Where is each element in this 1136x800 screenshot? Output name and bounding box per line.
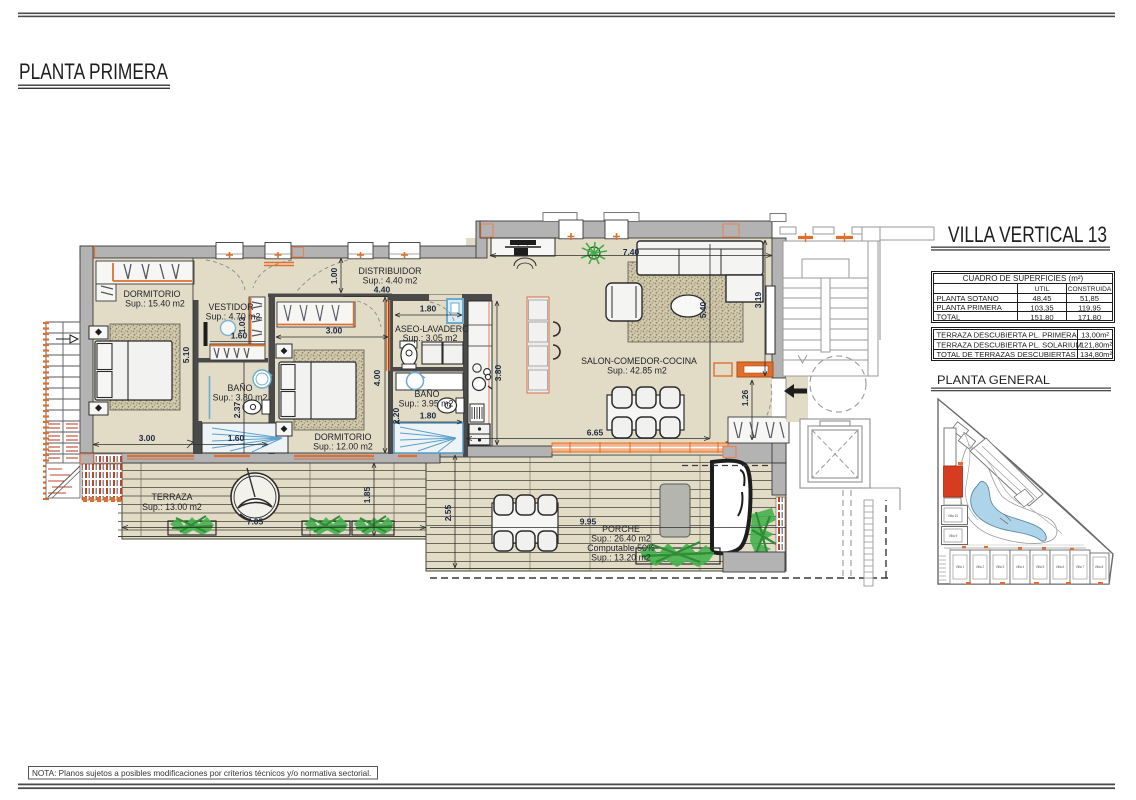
- svg-text:Sup.: 13.00 m2: Sup.: 13.00 m2: [142, 502, 202, 512]
- svg-text:5.40: 5.40: [698, 301, 708, 318]
- svg-text:3.00: 3.00: [326, 326, 343, 336]
- svg-text:2.20: 2.20: [391, 407, 401, 424]
- svg-text:PLANTA GENERAL: PLANTA GENERAL: [937, 375, 1051, 387]
- svg-text:Villa 1: Villa 1: [956, 565, 965, 569]
- svg-text:51,85: 51,85: [1080, 294, 1099, 303]
- svg-text:SALON-COMEDOR-COCINA: SALON-COMEDOR-COCINA: [581, 356, 697, 366]
- svg-text:4.40: 4.40: [374, 285, 391, 295]
- svg-text:Sup.: 3.05 m2: Sup.: 3.05 m2: [403, 333, 458, 343]
- svg-text:BAÑO: BAÑO: [415, 389, 440, 399]
- svg-text:151,80: 151,80: [1030, 313, 1053, 322]
- svg-text:TERRAZA: TERRAZA: [151, 492, 192, 502]
- svg-text:2.55: 2.55: [443, 504, 453, 521]
- svg-text:Sup.: 26.40 m2: Sup.: 26.40 m2: [591, 534, 651, 544]
- svg-text:CONSTRUIDA: CONSTRUIDA: [1068, 286, 1112, 293]
- svg-text:TOTAL DE TERRAZAS DESCUBIERTAS: TOTAL DE TERRAZAS DESCUBIERTAS: [937, 350, 1076, 359]
- svg-text:TERRAZA DESCUBIERTA PL. PRIMER: TERRAZA DESCUBIERTA PL. PRIMERA: [937, 331, 1078, 340]
- svg-text:171,80: 171,80: [1078, 313, 1101, 322]
- svg-text:Villa 5: Villa 5: [1036, 565, 1045, 569]
- svg-text:PLANTA SOTANO: PLANTA SOTANO: [937, 294, 999, 303]
- svg-text:VESTIDOR: VESTIDOR: [209, 302, 254, 312]
- svg-text:119,95: 119,95: [1078, 304, 1101, 313]
- svg-text:BAÑO: BAÑO: [228, 383, 253, 393]
- svg-text:1.80: 1.80: [420, 304, 437, 314]
- svg-text:Sup.: 4.40 m2: Sup.: 4.40 m2: [363, 276, 418, 286]
- svg-text:Sup.: 15.40 m2: Sup.: 15.40 m2: [125, 299, 185, 309]
- svg-text:Villa 10: Villa 10: [948, 514, 959, 518]
- svg-text:Villa 6: Villa 6: [1056, 565, 1065, 569]
- svg-text:TERRAZA DESCUBIERTA PL. SOLARI: TERRAZA DESCUBIERTA PL. SOLARIUM: [937, 341, 1082, 350]
- svg-text:121,80m²: 121,80m²: [1080, 341, 1113, 350]
- svg-text:Villa 9: Villa 9: [949, 534, 958, 538]
- svg-text:134,80m²: 134,80m²: [1080, 350, 1113, 359]
- svg-text:48,45: 48,45: [1032, 294, 1051, 303]
- svg-text:1.26: 1.26: [740, 389, 750, 406]
- svg-text:9.95: 9.95: [580, 517, 597, 527]
- svg-text:Sup.: 4.70 m2: Sup.: 4.70 m2: [206, 312, 261, 322]
- svg-text:1.00: 1.00: [329, 267, 339, 284]
- svg-text:PLANTA PRIMERA: PLANTA PRIMERA: [19, 59, 168, 84]
- svg-text:Villa 8: Villa 8: [1095, 565, 1104, 569]
- svg-text:3.00: 3.00: [139, 433, 156, 443]
- svg-text:Villa 3: Villa 3: [996, 565, 1005, 569]
- svg-text:103,35: 103,35: [1030, 304, 1053, 313]
- svg-text:DORMITORIO: DORMITORIO: [123, 289, 180, 299]
- svg-text:Sup.: 42.85 m2: Sup.: 42.85 m2: [607, 366, 667, 376]
- svg-text:Sup.: 3.95 m2: Sup.: 3.95 m2: [399, 399, 454, 409]
- svg-text:PORCHE: PORCHE: [602, 524, 640, 534]
- svg-text:1.80: 1.80: [420, 411, 437, 421]
- svg-text:7.40: 7.40: [623, 247, 640, 257]
- svg-text:2.37: 2.37: [232, 401, 242, 418]
- svg-text:CUADRO DE SUPERFICIES (m²): CUADRO DE SUPERFICIES (m²): [963, 274, 1084, 283]
- svg-text:Sup.: 3.80 m2: Sup.: 3.80 m2: [213, 393, 268, 403]
- svg-text:3.80: 3.80: [493, 364, 503, 381]
- svg-text:TOTAL: TOTAL: [937, 313, 961, 322]
- svg-text:NOTA: Planos sujetos a posible: NOTA: Planos sujetos a posibles modifica…: [32, 769, 371, 778]
- svg-text:Sup.: 13.20 m2: Sup.: 13.20 m2: [591, 553, 651, 563]
- svg-text:13,00m²: 13,00m²: [1081, 331, 1109, 340]
- svg-text:Sup.: 12.00 m2: Sup.: 12.00 m2: [313, 442, 373, 452]
- svg-text:VILLA VERTICAL 13: VILLA VERTICAL 13: [948, 222, 1107, 247]
- svg-text:Computable 50%: Computable 50%: [587, 543, 655, 553]
- svg-text:3.19: 3.19: [753, 291, 763, 308]
- svg-text:PLANTA PRIMERA: PLANTA PRIMERA: [937, 303, 1003, 312]
- svg-text:1.85: 1.85: [362, 486, 372, 503]
- svg-text:Villa 4: Villa 4: [1016, 565, 1025, 569]
- svg-text:7.05: 7.05: [247, 517, 264, 527]
- svg-text:Villa 2: Villa 2: [976, 565, 985, 569]
- svg-text:4.00: 4.00: [372, 369, 382, 386]
- svg-text:DISTRIBUIDOR: DISTRIBUIDOR: [358, 266, 421, 276]
- svg-text:DORMITORIO: DORMITORIO: [314, 432, 371, 442]
- svg-text:1.60: 1.60: [228, 433, 245, 443]
- svg-text:6.65: 6.65: [587, 428, 604, 438]
- svg-text:Villa 7: Villa 7: [1076, 565, 1085, 569]
- svg-text:5.10: 5.10: [181, 346, 191, 363]
- svg-text:UTIL: UTIL: [1035, 286, 1050, 293]
